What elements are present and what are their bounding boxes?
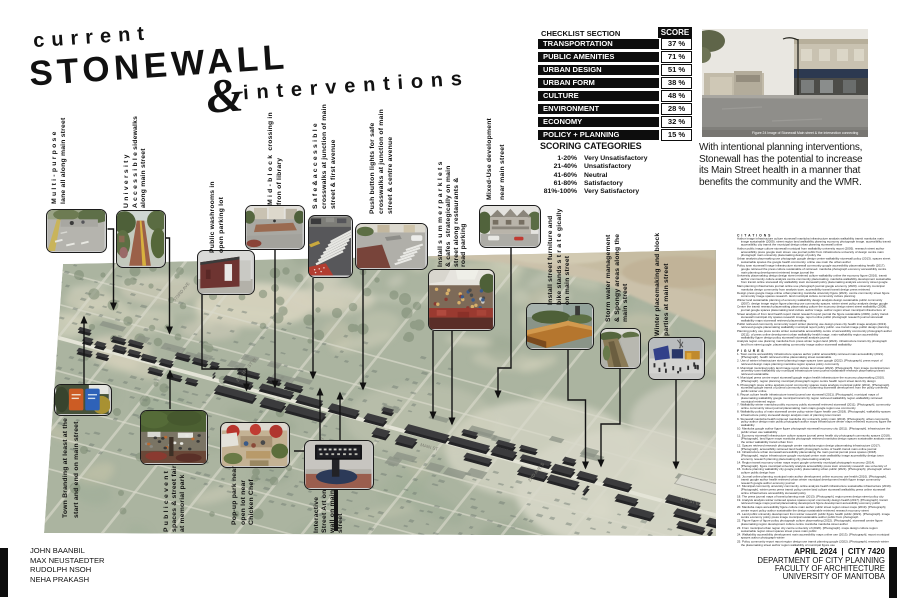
svg-text:Figure 24 Image of Stonewall M: Figure 24 Image of Stonewall Main street… [752, 131, 858, 135]
